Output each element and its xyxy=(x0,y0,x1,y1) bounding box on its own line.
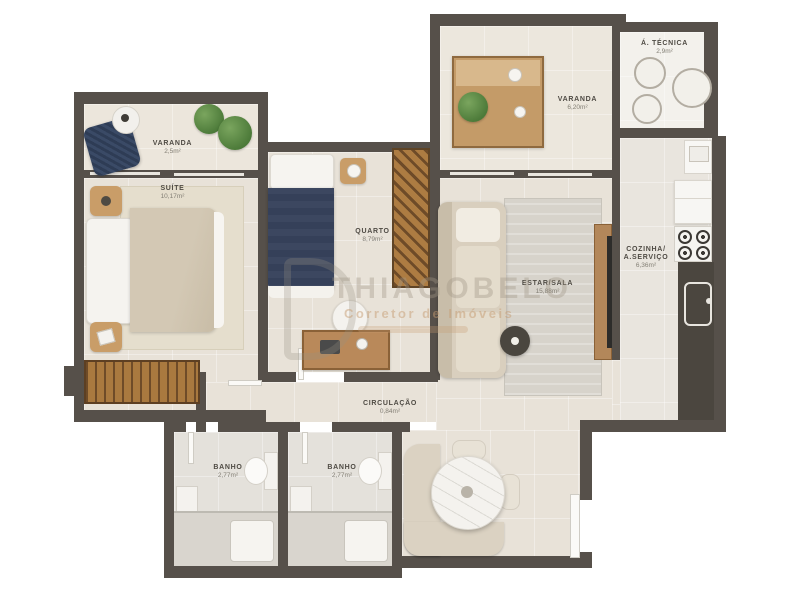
wall xyxy=(612,130,620,360)
wall xyxy=(612,128,718,138)
lamp-icon xyxy=(347,164,361,178)
shower-tray xyxy=(230,520,274,562)
condenser-unit-icon xyxy=(634,57,666,89)
rug-estar xyxy=(504,198,602,396)
desk-lamp-icon xyxy=(356,338,368,350)
bed-quarto-pillows xyxy=(270,154,334,190)
bed-quarto-duvet xyxy=(268,188,334,292)
wall xyxy=(278,422,288,578)
wall xyxy=(612,26,620,130)
toilet-bowl xyxy=(358,457,382,485)
plant-icon xyxy=(458,92,488,122)
desk xyxy=(302,330,390,370)
glass-pane xyxy=(450,172,514,175)
nightstand-decor-icon xyxy=(101,196,111,206)
bed-suite-headboard xyxy=(86,218,134,324)
laundry-tub-basin xyxy=(689,146,709,162)
wall xyxy=(580,420,726,432)
burner-icon xyxy=(696,230,710,244)
wall xyxy=(392,556,592,568)
wall xyxy=(712,136,726,432)
wall xyxy=(580,430,592,500)
bed-suite-duvet xyxy=(130,208,216,332)
burner-icon xyxy=(678,246,692,260)
wall xyxy=(64,366,74,396)
bowl-icon xyxy=(508,68,522,82)
sofa-back xyxy=(438,202,452,378)
door-entrada xyxy=(570,494,580,558)
glass-pane xyxy=(528,173,592,176)
wall xyxy=(580,552,592,568)
wall xyxy=(164,566,402,578)
shower-glass xyxy=(174,511,278,513)
outdoor-table-top xyxy=(456,60,540,86)
bowl-icon xyxy=(514,106,526,118)
burner-icon xyxy=(696,246,710,260)
wardrobe-quarto xyxy=(392,148,430,288)
door-banho1 xyxy=(188,432,194,464)
wall xyxy=(74,92,266,104)
wall xyxy=(430,14,626,26)
door-suite xyxy=(228,380,262,386)
wall xyxy=(344,372,438,382)
sofa-cushion xyxy=(456,208,500,242)
burner-icon xyxy=(678,230,692,244)
vase-icon xyxy=(511,337,519,345)
fridge-divider xyxy=(674,198,712,199)
table-centerpiece-icon xyxy=(461,486,473,498)
wall xyxy=(74,92,84,422)
laptop-icon xyxy=(320,340,340,354)
wall xyxy=(258,92,268,376)
sliding-door-varanda-top xyxy=(436,170,614,178)
toilet-bowl xyxy=(244,457,268,485)
sofa-cushion xyxy=(456,312,500,372)
condenser-unit-icon xyxy=(632,94,662,124)
wall xyxy=(392,422,402,578)
tv-icon xyxy=(607,236,612,348)
shower-glass xyxy=(288,511,392,513)
door-banho2 xyxy=(302,432,308,464)
bed-suite-sheet xyxy=(214,212,224,328)
kitchen-sink xyxy=(684,282,712,326)
wall xyxy=(258,372,296,382)
wall xyxy=(164,422,174,578)
side-table-decor-icon xyxy=(121,114,129,122)
plant-icon xyxy=(218,116,252,150)
faucet-icon xyxy=(706,298,712,304)
floor-plan: VARANDA 2,5m² SUÍTE 10,17m² QUARTO 8,79m… xyxy=(0,0,792,600)
glass-pane xyxy=(174,173,244,176)
wardrobe-suite xyxy=(84,360,200,404)
wall xyxy=(74,410,266,422)
sofa-cushion xyxy=(456,246,500,308)
floor-passagem-cozinha xyxy=(612,360,620,420)
wall xyxy=(618,22,718,32)
fridge xyxy=(674,180,712,224)
bed-quarto-sheet xyxy=(268,286,334,298)
shower-tray xyxy=(344,520,388,562)
condenser-unit-icon xyxy=(672,68,712,108)
